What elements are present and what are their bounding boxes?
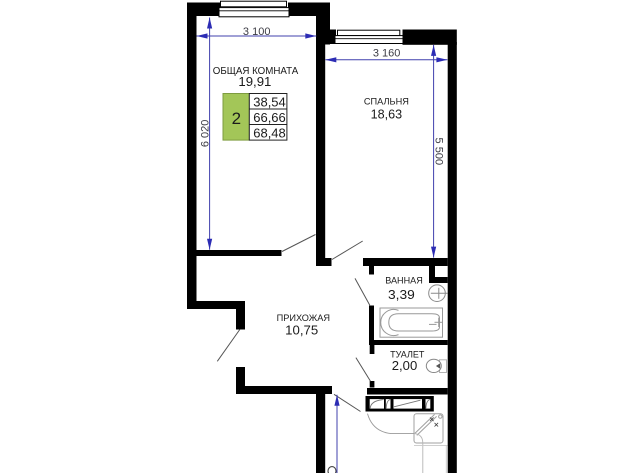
svg-text:2: 2: [232, 109, 241, 128]
svg-text:3 100: 3 100: [243, 26, 271, 38]
svg-text:66,66: 66,66: [253, 110, 286, 125]
svg-text:3 160: 3 160: [373, 48, 401, 60]
svg-text:18,63: 18,63: [371, 107, 403, 122]
svg-text:68,48: 68,48: [253, 125, 286, 140]
svg-text:19,91: 19,91: [238, 74, 271, 89]
svg-text:38,54: 38,54: [253, 94, 286, 109]
svg-text:3,39: 3,39: [388, 287, 415, 302]
svg-text:6 020: 6 020: [199, 120, 211, 148]
svg-text:ВАННАЯ: ВАННАЯ: [385, 275, 423, 285]
svg-text:СПАЛЬНЯ: СПАЛЬНЯ: [364, 97, 409, 107]
svg-text:2,00: 2,00: [392, 358, 418, 373]
svg-text:10,75: 10,75: [285, 323, 318, 338]
svg-text:5 500: 5 500: [432, 138, 444, 166]
